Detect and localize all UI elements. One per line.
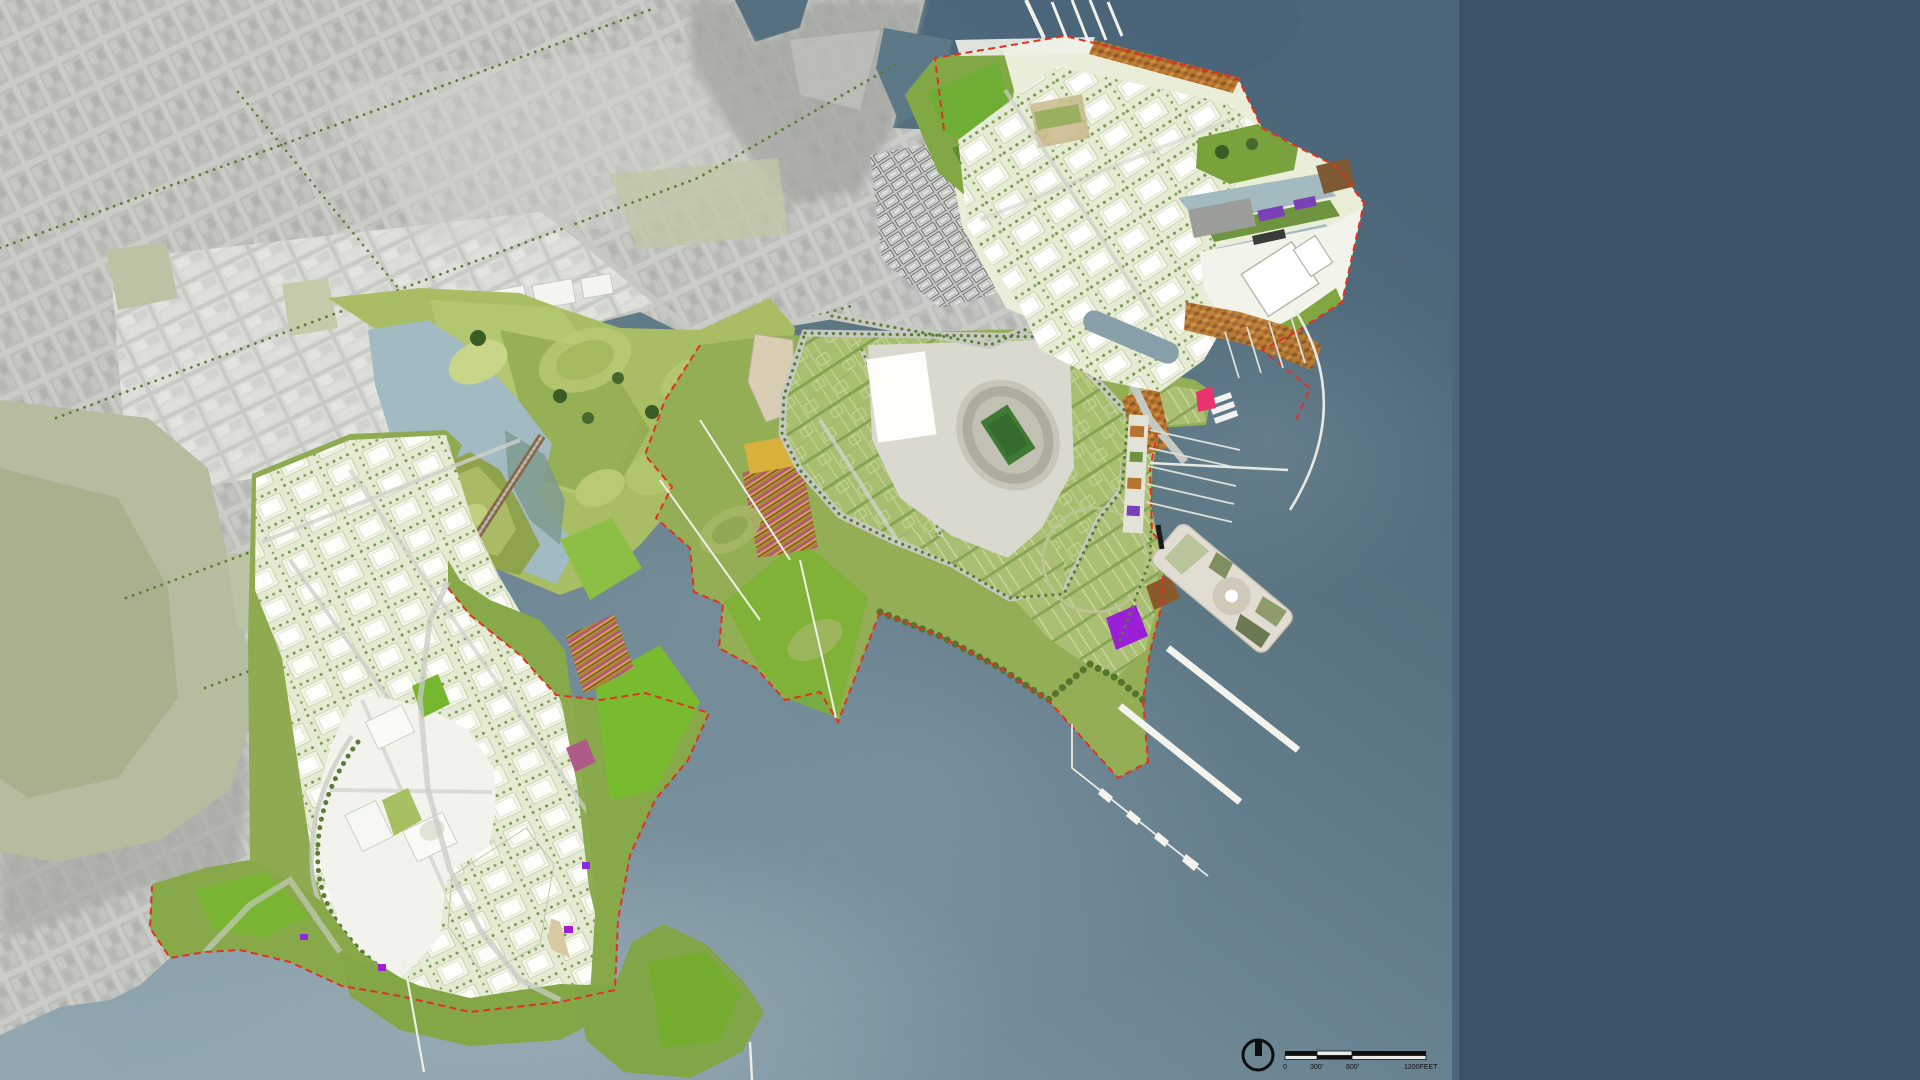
svg-text:1200FEET: 1200FEET bbox=[1404, 1064, 1438, 1071]
svg-text:600': 600' bbox=[1346, 1064, 1359, 1071]
svg-text:300': 300' bbox=[1310, 1064, 1323, 1071]
svg-text:0: 0 bbox=[1283, 1064, 1287, 1071]
